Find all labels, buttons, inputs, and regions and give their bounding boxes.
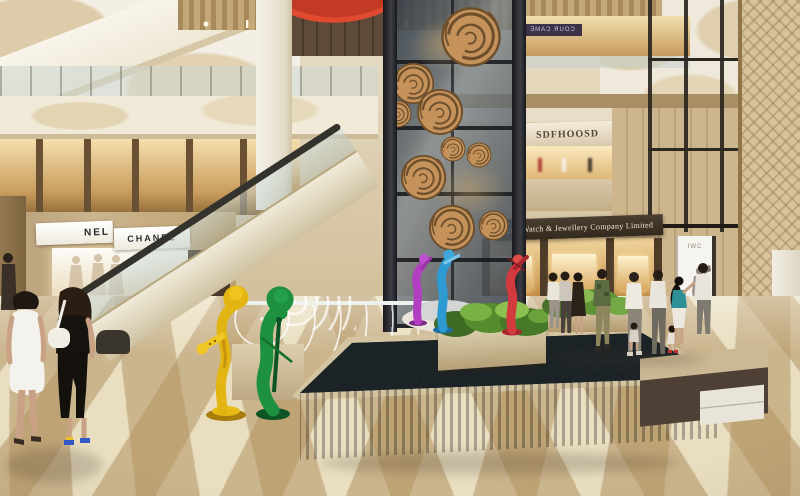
mall-atrium-scene: NEL CHANEL ƎMAƆ ЯUOƆ SDFHOOSD gant Watch…	[0, 0, 800, 496]
scene-vignette	[0, 0, 800, 496]
